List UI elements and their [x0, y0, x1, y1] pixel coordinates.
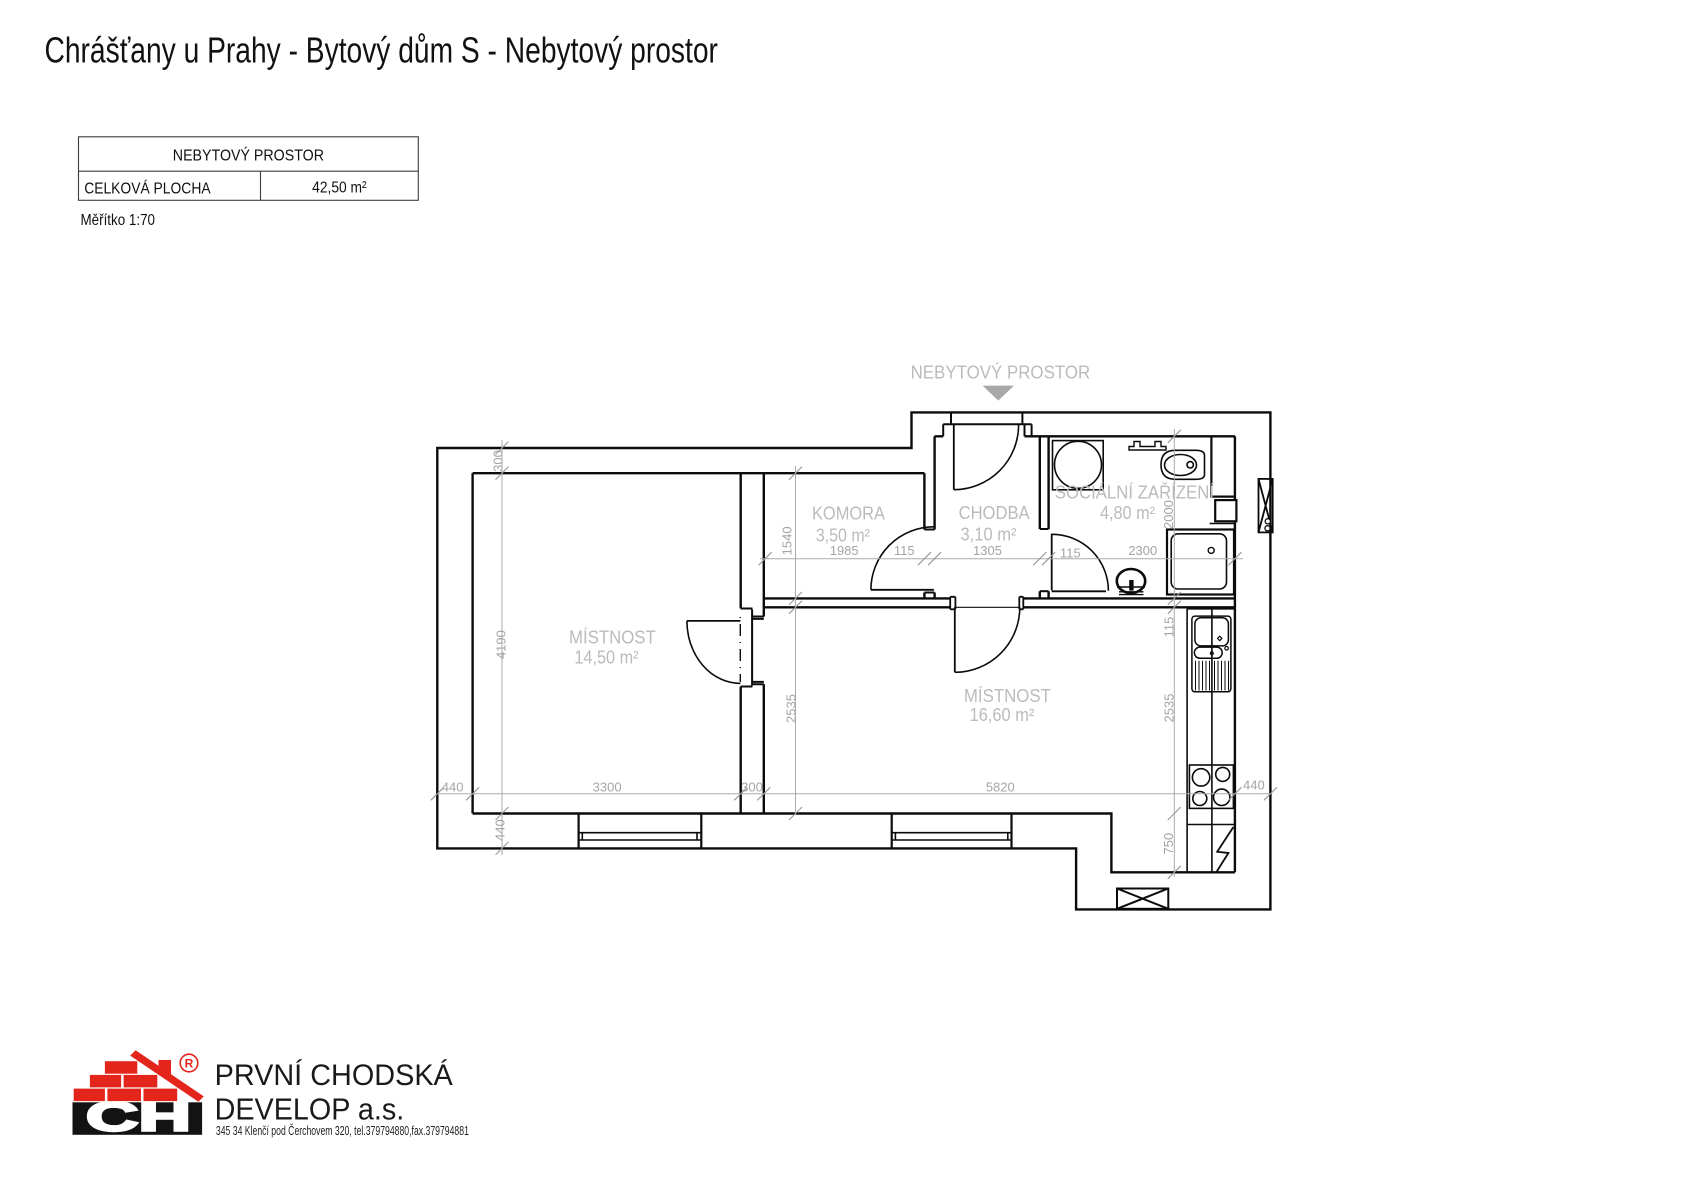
svg-text:440: 440 — [442, 779, 464, 794]
svg-text:Měřítko 1:70: Měřítko 1:70 — [81, 212, 156, 229]
svg-text:345 34 Klenčí pod Čerchovem 32: 345 34 Klenčí pod Čerchovem 320, tel.379… — [216, 1123, 469, 1138]
svg-text:16,60 m²: 16,60 m² — [970, 705, 1035, 725]
svg-text:1305: 1305 — [973, 543, 1002, 558]
svg-text:4,80 m²: 4,80 m² — [1100, 503, 1155, 523]
svg-text:2535: 2535 — [1162, 694, 1177, 723]
svg-text:1540: 1540 — [780, 526, 795, 555]
svg-text:Chrášťany u Prahy - Bytový dům: Chrášťany u Prahy - Bytový dům S - Nebyt… — [45, 29, 718, 70]
svg-text:3300: 3300 — [593, 779, 622, 794]
svg-text:3,10 m²: 3,10 m² — [961, 524, 1017, 544]
svg-text:5820: 5820 — [986, 779, 1015, 794]
svg-text:2000: 2000 — [1161, 500, 1176, 529]
svg-text:115: 115 — [894, 543, 915, 558]
svg-text:NEBYTOVÝ PROSTOR: NEBYTOVÝ PROSTOR — [173, 146, 324, 165]
svg-text:440: 440 — [493, 819, 508, 841]
svg-text:440: 440 — [1243, 777, 1265, 792]
svg-text:42,50 m²: 42,50 m² — [312, 179, 367, 196]
svg-text:KOMORA: KOMORA — [812, 504, 885, 524]
svg-text:115: 115 — [1060, 545, 1081, 560]
svg-text:CHODBA: CHODBA — [959, 503, 1030, 523]
svg-text:CELKOVÁ PLOCHA: CELKOVÁ PLOCHA — [84, 179, 211, 198]
svg-text:MÍSTNOST: MÍSTNOST — [569, 628, 656, 648]
svg-text:4190: 4190 — [494, 630, 509, 659]
svg-text:2300: 2300 — [1128, 543, 1157, 558]
svg-text:115: 115 — [1162, 617, 1177, 638]
svg-text:2535: 2535 — [784, 694, 799, 723]
svg-text:750: 750 — [1161, 833, 1176, 855]
svg-text:14,50 m²: 14,50 m² — [574, 647, 638, 667]
svg-text:1985: 1985 — [830, 543, 859, 558]
svg-text:SOCIÁLNÍ ZAŘÍZENÍ: SOCIÁLNÍ ZAŘÍZENÍ — [1055, 482, 1214, 502]
svg-text:NEBYTOVÝ PROSTOR: NEBYTOVÝ PROSTOR — [911, 363, 1091, 383]
svg-text:R: R — [185, 1057, 194, 1071]
svg-text:300: 300 — [741, 779, 763, 794]
svg-text:DEVELOP a.s.: DEVELOP a.s. — [215, 1091, 405, 1126]
svg-text:PRVNÍ CHODSKÁ: PRVNÍ CHODSKÁ — [215, 1059, 453, 1092]
svg-text:MÍSTNOST: MÍSTNOST — [964, 686, 1051, 706]
svg-text:300: 300 — [491, 450, 506, 472]
